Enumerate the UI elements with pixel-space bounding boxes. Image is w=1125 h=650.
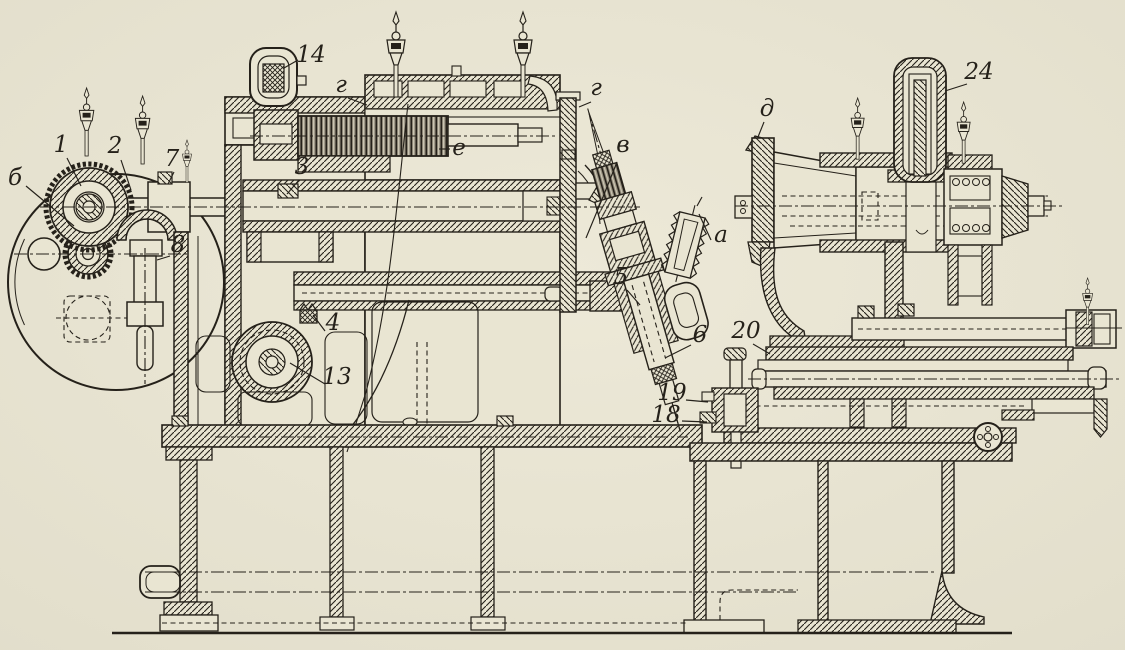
frame-left-wall (174, 232, 188, 428)
label-4-text: 4 (325, 310, 341, 336)
label-6-text: 6 (693, 322, 708, 348)
label-g-left-text: г (335, 72, 347, 98)
label-18-text: 18 (651, 402, 680, 428)
label-8-text: 8 (171, 232, 186, 258)
label-20-text: 20 (730, 318, 760, 344)
bed-leg (180, 460, 197, 602)
label-13-text: 13 (322, 364, 351, 390)
label-24-text: 24 (963, 59, 993, 85)
figure-page: б 1 2 7 8 14 г е 3 г в (0, 0, 1125, 650)
label-14-text: 14 (296, 42, 325, 68)
label-2-text: 2 (107, 133, 123, 159)
label-5-text: 5 (614, 264, 629, 290)
guide-column-24 (888, 58, 952, 182)
label-3-text: 3 (295, 154, 310, 180)
label-v-text: в (616, 132, 629, 158)
label-7-text: 7 (165, 146, 180, 172)
label-1-text: 1 (54, 132, 69, 158)
label-d-text: д (760, 96, 775, 122)
label-b-text: б (8, 165, 23, 191)
machine-sectional-drawing: б 1 2 7 8 14 г е 3 г в (0, 0, 1125, 650)
label-g-right-text: г (590, 75, 602, 101)
main-spindle-tube (243, 180, 560, 232)
label-e-text: е (452, 135, 466, 161)
label-a-text: а (714, 222, 728, 248)
